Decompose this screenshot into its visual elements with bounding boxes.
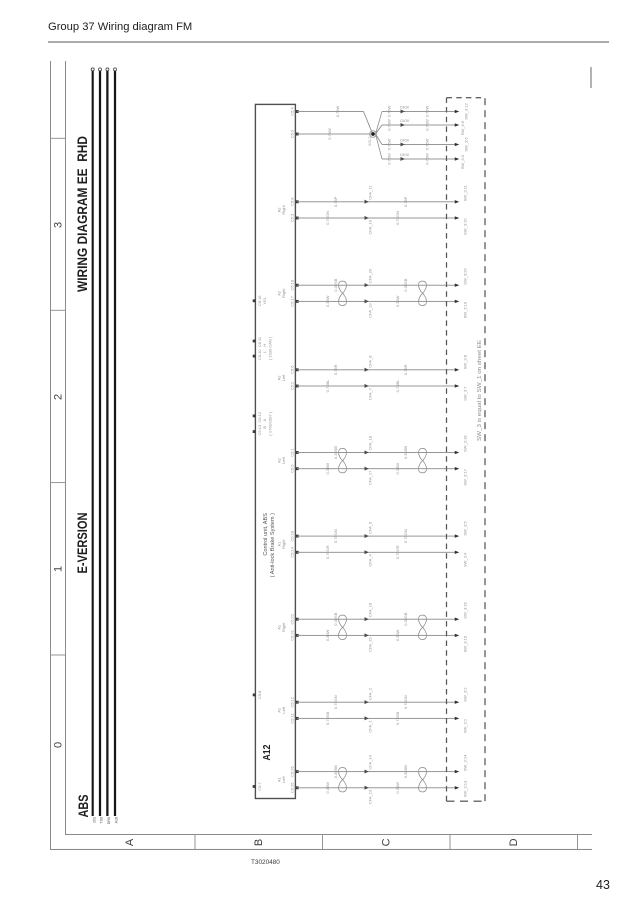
svg-text:SW_3:1: SW_3:1	[463, 718, 468, 733]
svg-text:C8O8: C8O8	[400, 153, 409, 157]
svg-text:0.35W: 0.35W	[395, 295, 400, 307]
svg-text:CFA_2: CFA_2	[368, 687, 373, 700]
svg-text:SW_3:10: SW_3:10	[463, 218, 468, 235]
svg-text:SW_3:13: SW_3:13	[463, 780, 468, 797]
svg-text:SW_3:16: SW_3:16	[463, 601, 468, 618]
svg-text:0.75BL: 0.75BL	[325, 379, 330, 392]
svg-text:0.75W: 0.75W	[425, 119, 430, 131]
svg-text:0.35W: 0.35W	[395, 629, 400, 641]
svg-text:A: A	[124, 838, 136, 846]
svg-text:CFA_14: CFA_14	[368, 754, 373, 769]
svg-text:E-VERSION: E-VERSION	[75, 513, 90, 574]
svg-text:0.35W: 0.35W	[325, 463, 330, 475]
svg-text:0.35SB: 0.35SB	[333, 446, 338, 459]
svg-text:B A: B A	[262, 418, 267, 428]
svg-text:0.75GN: 0.75GN	[395, 211, 400, 225]
svg-text:C5:18: C5:18	[289, 279, 294, 290]
svg-text:0: 0	[53, 742, 65, 748]
svg-text:SW_3:3: SW_3:3	[460, 154, 465, 169]
svg-text:C: C	[380, 838, 392, 846]
svg-text:C8O8: C8O8	[400, 105, 409, 109]
svg-text:0.35SB: 0.35SB	[333, 612, 338, 625]
svg-text:0.35SB: 0.35SB	[403, 278, 408, 291]
svg-text:SW_3 is equal to SW_1 on sheet: SW_3 is equal to SW_1 on sheet EE	[477, 339, 483, 441]
svg-text:0.35SB: 0.35SB	[403, 765, 408, 778]
svg-text:0.75W: 0.75W	[335, 105, 340, 117]
svg-text:SW_3:4: SW_3:4	[463, 552, 468, 567]
svg-text:Right: Right	[281, 622, 286, 632]
svg-text:SW_3:18: SW_3:18	[463, 435, 468, 452]
svg-text:( 1939 CAN ): ( 1939 CAN )	[268, 336, 273, 360]
svg-text:0.75W: 0.75W	[327, 128, 332, 140]
svg-text:C5:1: C5:1	[289, 448, 294, 457]
svg-text:C5:4: C5:4	[289, 107, 294, 116]
svg-text:C5:14: C5:14	[289, 546, 294, 557]
svg-text:0.35SB: 0.35SB	[403, 446, 408, 459]
svg-text:2: 2	[53, 394, 65, 400]
svg-text:0.35SB: 0.35SB	[333, 765, 338, 778]
svg-text:CFA_17: CFA_17	[368, 470, 373, 485]
svg-text:SW_3:17: SW_3:17	[463, 468, 468, 485]
svg-text:CFA_11: CFA_11	[368, 185, 373, 200]
svg-text:0.75W: 0.75W	[425, 153, 430, 165]
svg-text:SW_3:9: SW_3:9	[460, 120, 465, 135]
svg-text:C5:3: C5:3	[289, 213, 294, 222]
svg-text:0.75GR: 0.75GR	[395, 545, 400, 559]
svg-text:CFA_15: CFA_15	[368, 637, 373, 652]
svg-text:C5:16: C5:16	[289, 530, 294, 541]
svg-text:CFA_4: CFA_4	[368, 554, 373, 567]
svg-text:D: D	[508, 838, 520, 846]
svg-text:YEL: YEL	[262, 296, 267, 304]
svg-text:0.35W: 0.35W	[395, 463, 400, 475]
svg-text:Left: Left	[281, 374, 286, 382]
svg-text:0.35SB: 0.35SB	[403, 612, 408, 625]
svg-text:0.75SB: 0.75SB	[325, 712, 330, 725]
svg-text:0.75W: 0.75W	[387, 105, 392, 117]
svg-text:CFA_20: CFA_20	[368, 268, 373, 283]
svg-text:0.75W: 0.75W	[387, 138, 392, 150]
svg-text:CFA_10: CFA_10	[368, 219, 373, 234]
svg-text:C8O8: C8O8	[400, 138, 409, 142]
svg-text:CFA_8: CFA_8	[368, 355, 373, 368]
svg-text:A16: A16	[115, 817, 119, 823]
svg-text:C5:17: C5:17	[289, 295, 294, 306]
svg-text:SW_3:11: SW_3:11	[463, 184, 468, 201]
svg-text:0.35SB: 0.35SB	[333, 278, 338, 291]
svg-text:C5:12: C5:12	[289, 696, 294, 707]
svg-text:C5:21: C5:21	[289, 629, 294, 640]
svg-text:TS6: TS6	[100, 817, 104, 824]
svg-text:0.35W: 0.35W	[395, 782, 400, 794]
svg-text:0.75GN: 0.75GN	[333, 695, 338, 709]
svg-text:CFA_5: CFA_5	[368, 521, 373, 534]
svg-text:SW_3:7: SW_3:7	[463, 386, 468, 401]
svg-text:0.75R: 0.75R	[333, 364, 338, 375]
svg-text:CFA_1: CFA_1	[368, 720, 373, 733]
svg-text:C5:5: C5:5	[289, 464, 294, 473]
svg-text:0.75W: 0.75W	[425, 105, 430, 117]
svg-text:0.75P: 0.75P	[333, 196, 338, 207]
svg-text:0.75W: 0.75W	[387, 119, 392, 131]
svg-text:Control unit, ABS: Control unit, ABS	[263, 513, 269, 556]
svg-text:C5:25: C5:25	[289, 782, 294, 793]
svg-text:( 1708/1587 ): ( 1708/1587 )	[268, 411, 273, 435]
svg-text:SW_3:2: SW_3:2	[463, 687, 468, 702]
svg-text:3: 3	[53, 222, 65, 228]
svg-text:Left: Left	[281, 706, 286, 714]
svg-text:CFA_18: CFA_18	[368, 435, 373, 450]
svg-text:SW_3:14: SW_3:14	[463, 754, 468, 771]
svg-text:C5:8: C5:8	[289, 197, 294, 206]
svg-text:C5:9: C5:9	[289, 129, 294, 138]
svg-text:XCL2: XCL2	[368, 137, 372, 147]
svg-text:C5:2: C5:2	[289, 381, 294, 390]
svg-text:0.35W: 0.35W	[325, 629, 330, 641]
svg-text:SW_3:6: SW_3:6	[464, 137, 469, 152]
svg-text:203: 203	[92, 817, 96, 823]
svg-text:C5:22: C5:22	[289, 613, 294, 624]
svg-text:Left: Left	[281, 456, 286, 464]
svg-text:( Anti-lock Brake System ): ( Anti-lock Brake System )	[270, 513, 276, 577]
svg-text:C5:7: C5:7	[257, 782, 262, 791]
svg-text:Right: Right	[281, 204, 286, 214]
svg-text:A12: A12	[262, 744, 273, 760]
svg-text:0.75W: 0.75W	[387, 153, 392, 165]
svg-text:SW_3:19: SW_3:19	[463, 301, 468, 318]
svg-text:Right: Right	[281, 539, 286, 549]
svg-text:0.75SB: 0.75SB	[395, 712, 400, 725]
svg-text:CFA_7: CFA_7	[368, 387, 373, 400]
svg-text:0.75W: 0.75W	[425, 138, 430, 150]
svg-text:CFA_16: CFA_16	[368, 602, 373, 617]
svg-text:DR6: DR6	[107, 817, 111, 824]
svg-text:0.75P: 0.75P	[403, 196, 408, 207]
svg-text:SW_3:20: SW_3:20	[463, 267, 468, 284]
svg-text:SW_3:15: SW_3:15	[463, 635, 468, 652]
svg-text:0.75GN: 0.75GN	[325, 211, 330, 225]
svg-text:0.75R: 0.75R	[403, 364, 408, 375]
svg-text:WIRING DIAGRAM EE RHD: WIRING DIAGRAM EE RHD	[75, 136, 90, 292]
svg-text:C5:26: C5:26	[289, 765, 294, 776]
svg-text:SW_3:12: SW_3:12	[464, 102, 469, 119]
svg-text:C5:6: C5:6	[289, 365, 294, 374]
svg-text:Left: Left	[281, 775, 286, 783]
svg-text:C5:11: C5:11	[289, 712, 294, 723]
svg-text:B: B	[253, 839, 265, 846]
svg-text:SW_3:8: SW_3:8	[463, 354, 468, 369]
svg-text:C5:8: C5:8	[257, 690, 262, 699]
svg-text:SW_3:5: SW_3:5	[463, 521, 468, 536]
svg-text:CFA_13: CFA_13	[368, 789, 373, 804]
svg-text:C8O8: C8O8	[400, 119, 409, 123]
svg-text:0.75GR: 0.75GR	[325, 545, 330, 559]
svg-text:L H: L H	[262, 344, 267, 354]
svg-text:0.75GN: 0.75GN	[403, 695, 408, 709]
svg-text:Right: Right	[281, 288, 286, 298]
svg-text:0.35W: 0.35W	[325, 295, 330, 307]
svg-text:CFA_19: CFA_19	[368, 303, 373, 318]
svg-text:0.75GN: 0.75GN	[333, 529, 338, 543]
svg-text:1: 1	[53, 566, 65, 572]
svg-text:ABS: ABS	[76, 795, 91, 818]
svg-text:0.35W: 0.35W	[325, 782, 330, 794]
svg-text:0.75GN: 0.75GN	[403, 529, 408, 543]
svg-text:0.75BL: 0.75BL	[395, 379, 400, 392]
